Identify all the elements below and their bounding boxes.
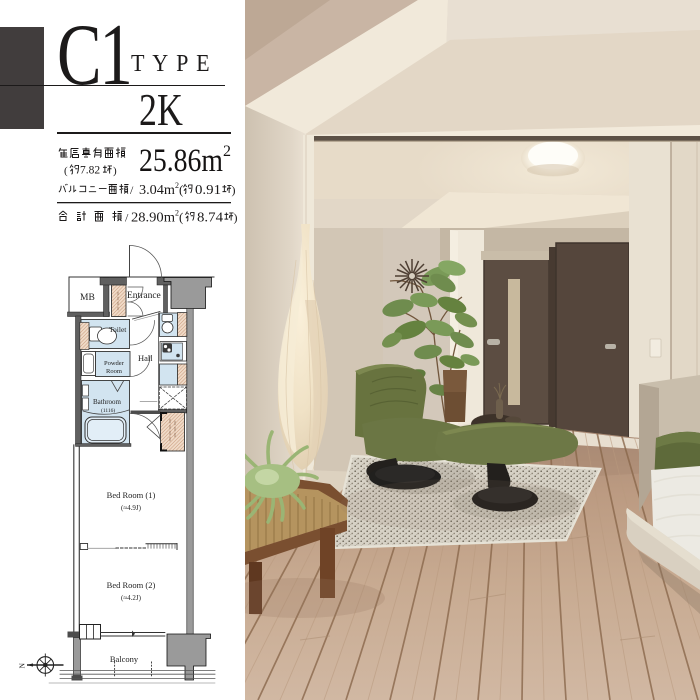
svg-text:(≈4.2J): (≈4.2J) bbox=[121, 594, 142, 602]
svg-text:Toilet: Toilet bbox=[109, 325, 127, 334]
svg-text:25.86m: 25.86m bbox=[139, 143, 223, 179]
svg-text:N: N bbox=[18, 663, 27, 669]
svg-text:Powder: Powder bbox=[104, 360, 125, 367]
svg-text:7.82: 7.82 bbox=[80, 165, 100, 177]
svg-text:/: / bbox=[130, 183, 134, 197]
svg-text:(≈4.9J): (≈4.9J) bbox=[121, 504, 142, 512]
svg-text:Bathroom: Bathroom bbox=[93, 398, 122, 406]
svg-text:0.91: 0.91 bbox=[195, 183, 221, 198]
svg-text:Room: Room bbox=[106, 368, 122, 375]
svg-text:): ) bbox=[232, 183, 236, 197]
svg-text:28.90m: 28.90m bbox=[131, 211, 175, 226]
svg-text:Hall: Hall bbox=[138, 353, 153, 363]
svg-text:(: ( bbox=[179, 210, 183, 225]
svg-text:3.04m: 3.04m bbox=[139, 183, 175, 198]
svg-text:Bed Room (1): Bed Room (1) bbox=[107, 490, 156, 500]
svg-text:2: 2 bbox=[223, 143, 231, 160]
svg-text:8.74: 8.74 bbox=[197, 211, 223, 226]
svg-text:(1116): (1116) bbox=[101, 407, 115, 414]
svg-text:(: ( bbox=[64, 165, 68, 177]
svg-text:): ) bbox=[234, 211, 238, 225]
svg-text:Bed Room (2): Bed Room (2) bbox=[107, 580, 156, 590]
svg-text:Entrance: Entrance bbox=[127, 291, 161, 301]
svg-text:/: / bbox=[125, 211, 129, 225]
svg-text:(: ( bbox=[179, 182, 183, 197]
svg-text:MB: MB bbox=[80, 293, 95, 303]
svg-text:): ) bbox=[113, 165, 117, 177]
